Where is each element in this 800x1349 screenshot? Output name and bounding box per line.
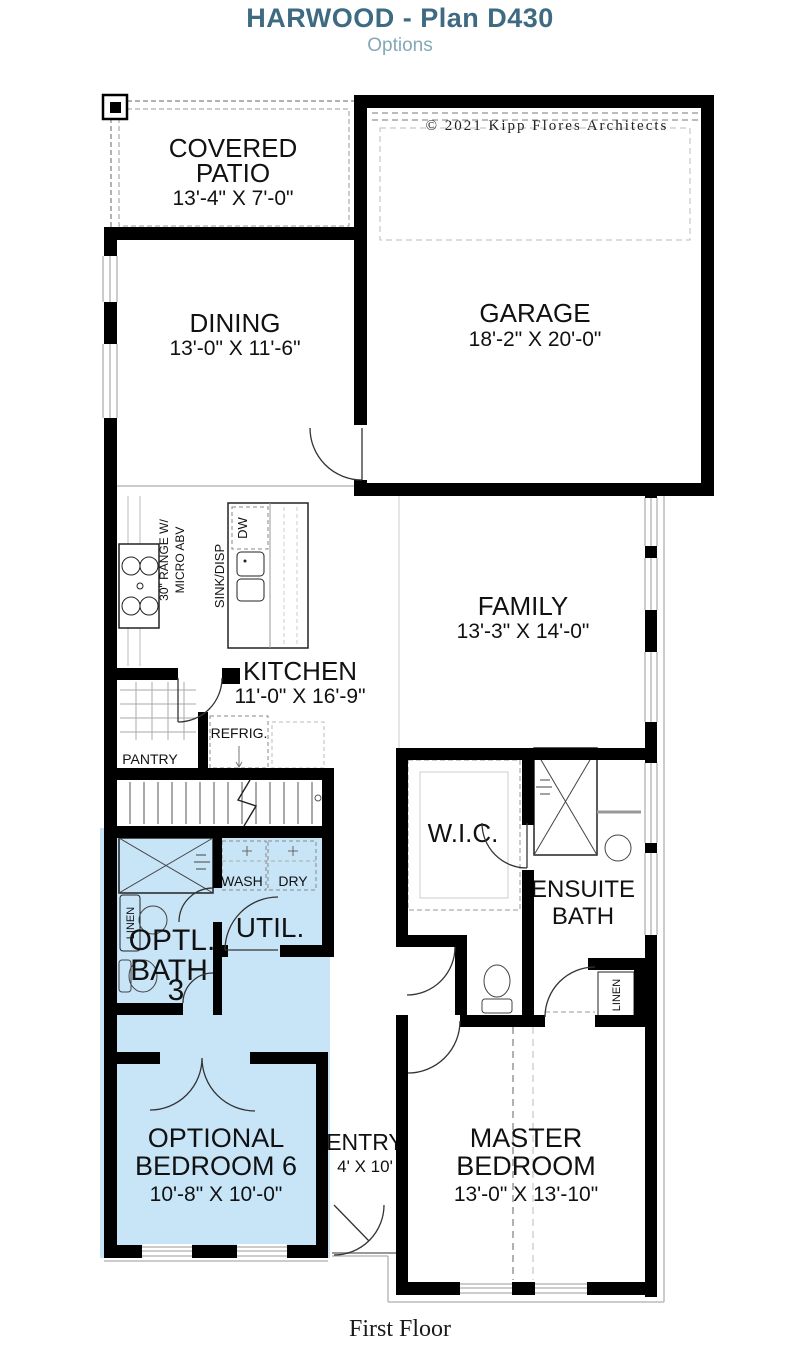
dishwasher-label: DW [235,516,250,538]
refrigerator: REFRIG. [210,716,324,768]
ensuite-door [545,967,595,1017]
patio-column [103,95,127,119]
wall-garage-right [701,95,714,496]
master-door [408,1021,460,1073]
stairs [130,780,321,826]
wall-util-bottom-a [213,945,228,957]
washer-label: WASH [221,873,262,889]
wall-stairs-top [104,768,334,780]
window [641,498,661,546]
room-label: W.I.C. [428,818,499,848]
room-dims: 13'-4" X 7'-0" [173,187,294,210]
wall-bedroom6-right [316,1052,328,1258]
room-entry: ENTRY 4' X 10' [326,1129,404,1253]
wall-bedroom6-top-a [104,1052,160,1064]
stair-treads [130,782,312,824]
pantry-shelves [120,682,196,740]
room-label: OPTIONAL [148,1123,285,1153]
wall-bedroom6-bottom-b [192,1245,237,1258]
wall-bath3-bottom-b [213,1003,222,1015]
appliance-space-outline [272,722,324,768]
room-master-bedroom: MASTER BEDROOM 13'-0" X 13'-10" [454,1027,598,1280]
floor-plan-drawing: COVERED PATIO 13'-4" X 7'-0" © 2021 Kipp… [0,0,800,1349]
kitchen-island: DW SINK/DISP [212,503,308,648]
room-dims: 13'-0" X 11'-6" [169,337,300,360]
room-dims: 13'-3" X 14'-0" [457,620,590,643]
window [535,1281,587,1296]
wall-pantry-top-b [222,668,240,684]
window [100,256,121,302]
room-label: PATIO [196,158,270,188]
floor-label: First Floor [0,1316,800,1343]
range-label: 30" RANGE W/ [157,519,171,601]
wall-house-right-lower [645,1015,657,1297]
wall-dining-top [104,227,356,240]
room-label: FAMILY [478,591,569,621]
room-label: BATH [552,903,614,930]
wall-garage-left-upper [354,95,367,425]
newel-post [315,795,321,801]
range-label: MICRO ABV [173,527,187,594]
room-label: ENSUITE [531,876,635,903]
toilet-tank [482,999,512,1013]
water-line-icon [236,746,242,767]
garage-entry-door [310,428,362,480]
range-outline [119,544,159,628]
window [100,344,121,418]
wall-util-bottom-b [280,945,334,957]
wall-master-top-c [595,1015,657,1027]
pantry: PANTRY [120,682,196,767]
room-label: UTIL. [236,912,304,943]
garage-overhead-outline [380,128,690,240]
wall-bedroom6-bottom-c [287,1245,328,1258]
window [460,1281,512,1296]
toilet [482,965,512,1013]
wall-garage-top [354,95,714,108]
wall-bath3-bottom-a [104,1003,183,1015]
wall-master-bottom-b [512,1282,535,1295]
toilet-bowl [484,965,510,997]
room-label: ENTRY [326,1129,404,1155]
room-label: 3 [168,974,185,1007]
hall-door [407,947,455,995]
room-family: FAMILY 13'-3" X 14'-0" [399,496,589,748]
wall-master-bottom-a [396,1282,460,1295]
hall-linen-closet: LINEN [598,972,634,1018]
sink-drain [244,560,247,563]
wall-master-left [396,1015,408,1295]
room-label: OPTL. [129,924,216,957]
room-kitchen: 30" RANGE W/ MICRO ABV DW SINK/DISP KITC… [119,496,366,768]
room-label: KITCHEN [243,656,357,686]
wall-wic-right-upper [522,748,534,825]
wall-master-top-a [396,1015,408,1027]
room-wic: W.I.C. [408,760,520,910]
column-core [110,102,121,113]
wall-bath3-util-b [213,922,222,1008]
room-covered-patio: COVERED PATIO 13'-4" X 7'-0" [111,101,357,234]
wall-garage-left-lower [354,480,367,496]
room-label: BEDROOM 6 [135,1151,297,1181]
room-label: MASTER [470,1123,583,1153]
room-dims: 10'-8" X 10'-0" [150,1183,283,1206]
wall-master-bottom-c [587,1282,657,1295]
room-label: DINING [190,308,281,338]
room-label: BEDROOM [456,1151,596,1181]
room-optional-bedroom: OPTIONAL BEDROOM 6 10'-8" X 10'-0" [135,1123,297,1206]
room-dims: 18'-2" X 20'-0" [469,328,602,351]
pantry-label: PANTRY [122,751,178,767]
dryer-label: DRY [278,873,308,889]
window [641,853,661,935]
room-garage: © 2021 Kipp Flores Architects GARAGE 18'… [372,113,698,351]
window [237,1244,287,1259]
sink-label: SINK/DISP [212,544,227,608]
stair-break-line [238,780,256,826]
range [119,544,159,628]
wall-pantry-top-a [104,668,178,680]
room-dims: 11'-0" X 16'-9" [234,685,365,708]
window [641,558,661,610]
window [641,763,661,843]
copyright-text: © 2021 Kipp Flores Architects [426,118,669,134]
front-entry-door [334,1205,384,1255]
wall-bedroom6-bottom-a [104,1245,142,1258]
bath-sink [605,835,631,861]
window [142,1244,192,1259]
floor-plan-page: HARWOOD - Plan D430 Options COVERED PATI… [0,0,800,1349]
wall-toilet-room [455,935,467,1015]
room-dims: 4' X 10' [337,1157,393,1176]
wall-wic-left [396,748,408,947]
room-dining: DINING 13'-0" X 11'-6" [169,308,300,360]
room-label: GARAGE [479,298,590,328]
wall-linen-right [634,958,645,1018]
window [641,652,661,722]
refrigerator-label: REFRIG. [211,725,268,741]
wall-bath3-util-a [213,838,222,888]
linen-label: LINEN [611,979,623,1011]
wall-master-top-b [460,1015,545,1027]
room-dims: 13'-0" X 13'-10" [454,1183,598,1206]
wall-corridor-left [322,770,334,957]
wall-garage-bottom [354,483,714,496]
wall-bath3-top [104,826,334,838]
wall-wic-right-lower [522,870,534,1015]
